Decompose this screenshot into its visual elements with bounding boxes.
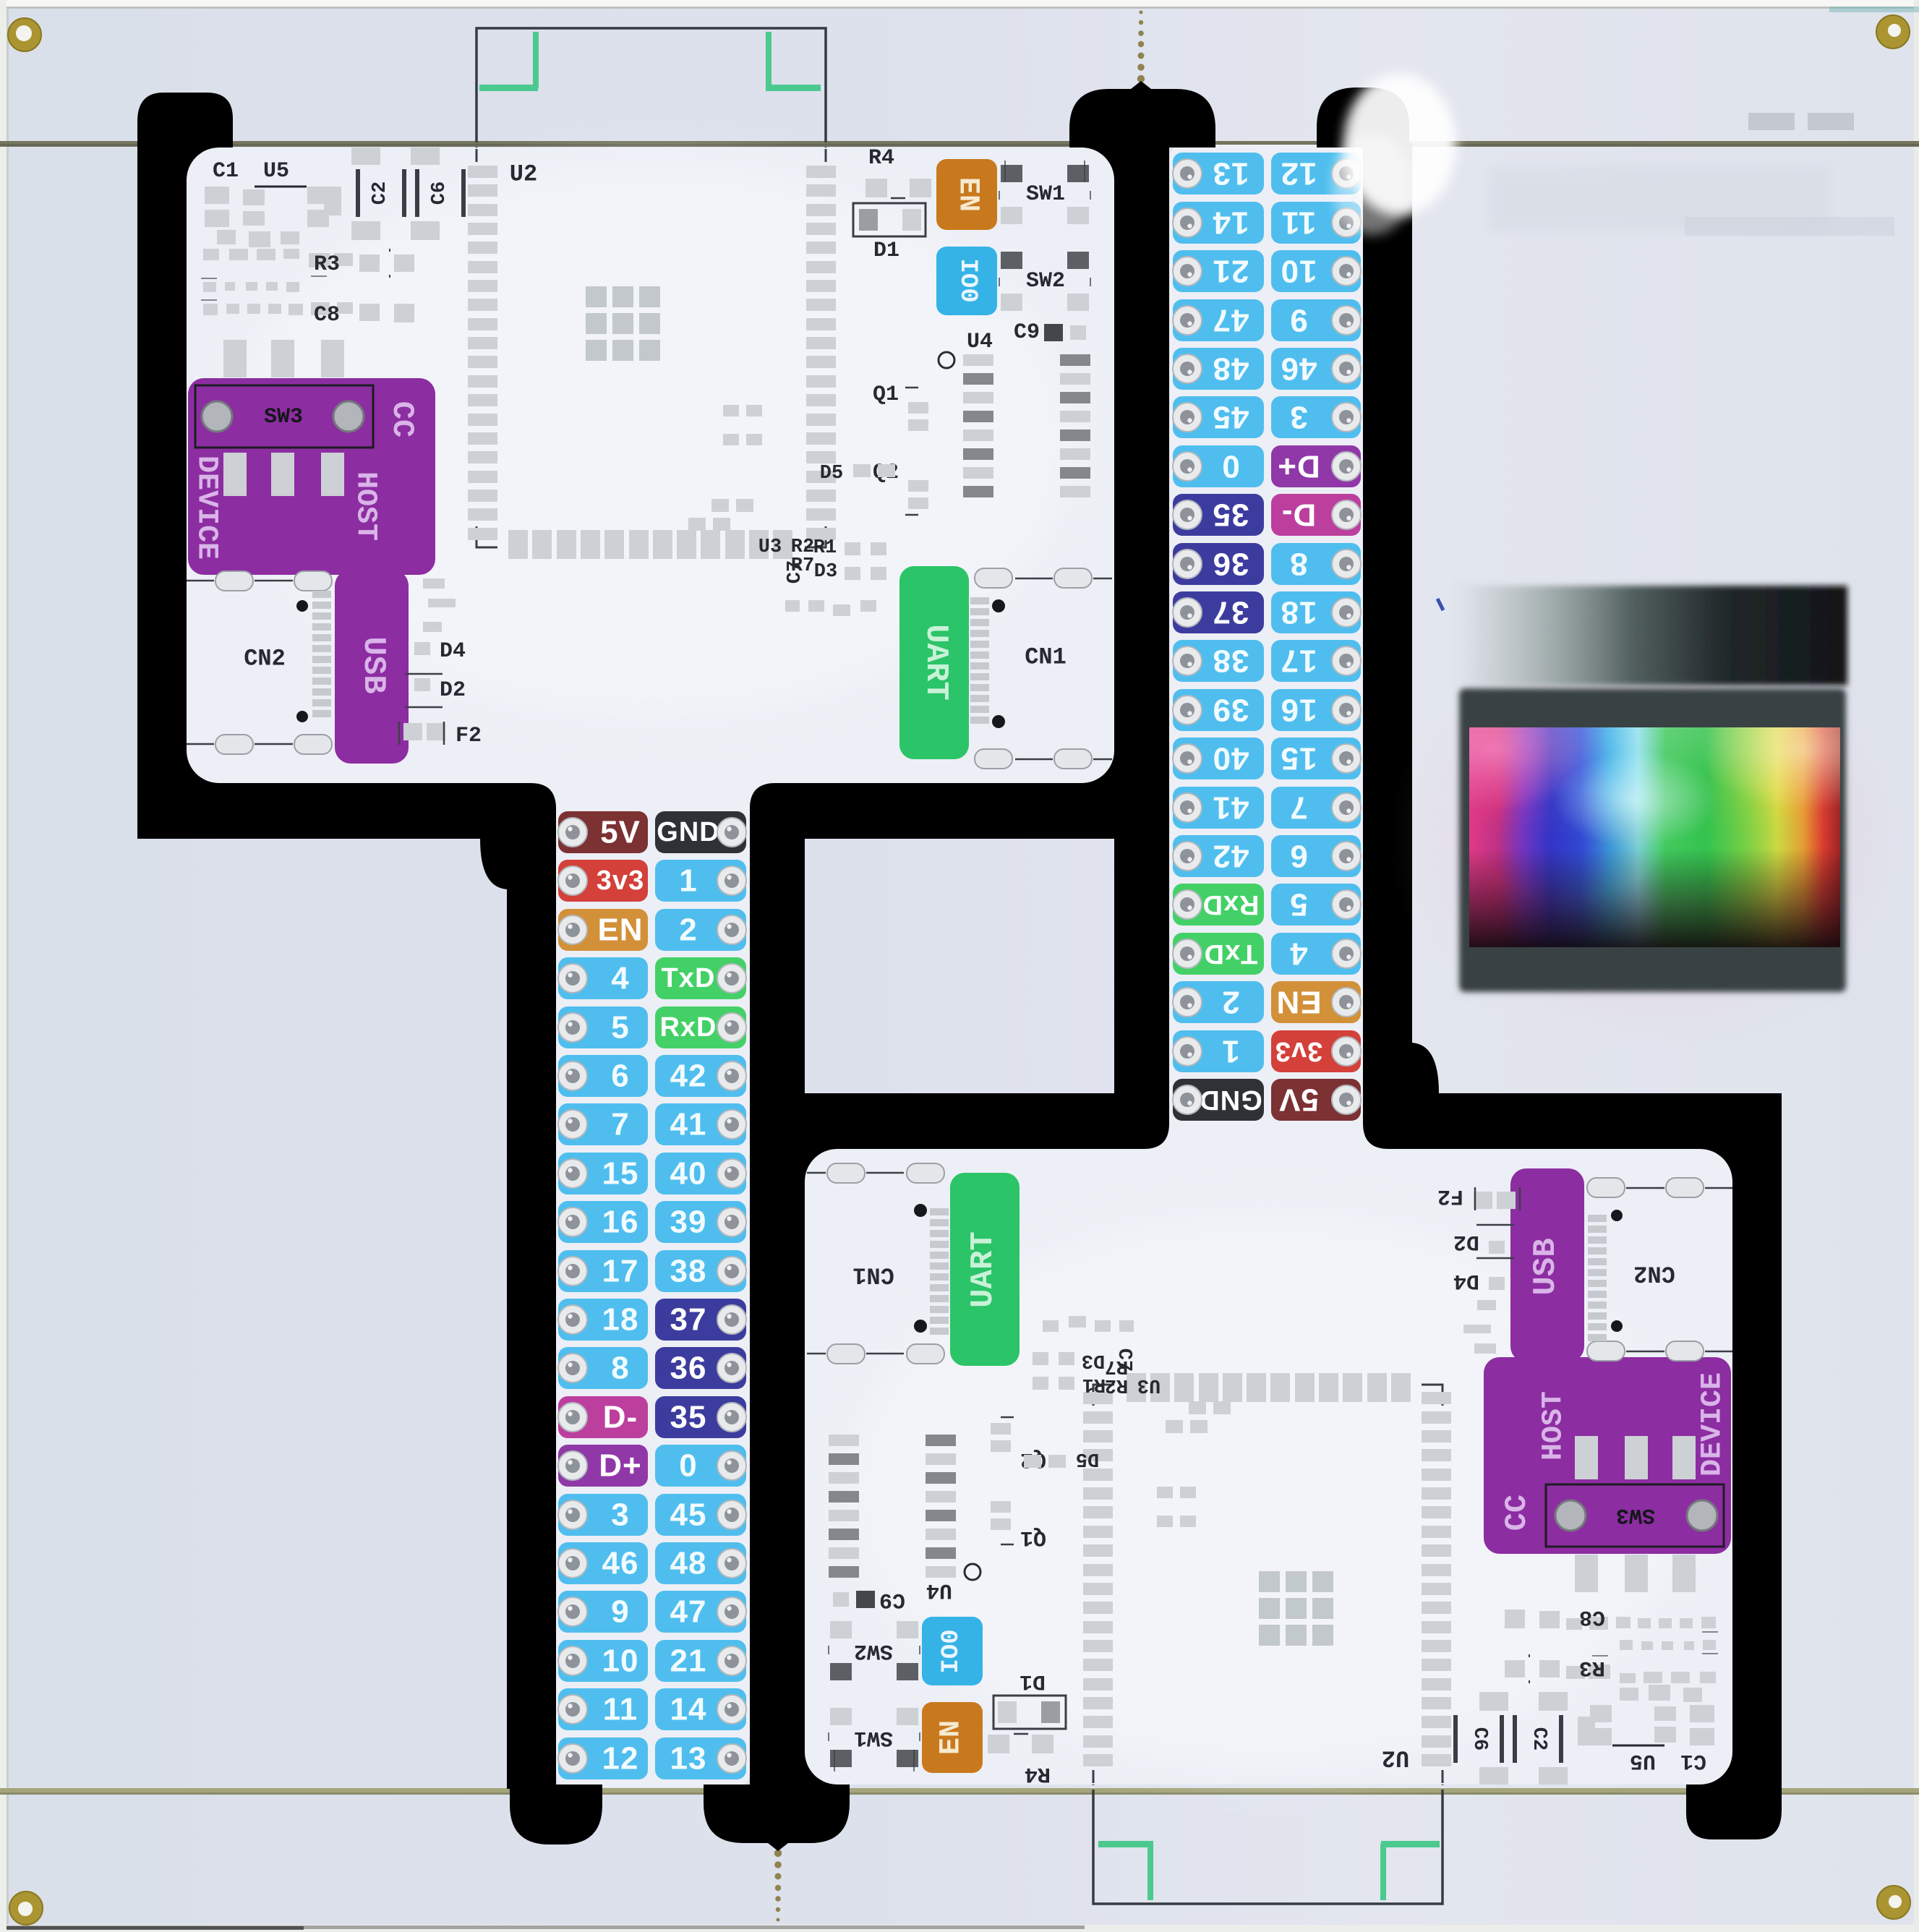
svg-text:HOST: HOST [349, 471, 382, 541]
svg-text:13: 13 [670, 1741, 707, 1777]
svg-text:3: 3 [611, 1497, 629, 1533]
svg-text:10: 10 [602, 1644, 639, 1679]
svg-text:R3: R3 [314, 252, 340, 277]
svg-text:DEVICE: DEVICE [190, 456, 223, 560]
svg-text:9: 9 [611, 1594, 629, 1630]
svg-text:0: 0 [679, 1448, 697, 1484]
svg-text:12: 12 [602, 1741, 639, 1777]
svg-text:16: 16 [602, 1205, 639, 1240]
svg-text:3v3: 3v3 [597, 865, 644, 896]
svg-text:U2: U2 [510, 161, 537, 188]
svg-text:4: 4 [611, 961, 629, 996]
svg-text:37: 37 [670, 1302, 707, 1338]
svg-text:R7: R7 [791, 555, 814, 577]
svg-text:45: 45 [670, 1497, 707, 1533]
svg-text:Q1: Q1 [873, 382, 899, 407]
svg-text:48: 48 [670, 1546, 707, 1581]
svg-text:40: 40 [670, 1156, 707, 1192]
svg-text:14: 14 [670, 1692, 707, 1727]
svg-text:C2: C2 [369, 181, 391, 205]
svg-text:46: 46 [602, 1546, 639, 1581]
svg-text:D5: D5 [820, 463, 843, 484]
svg-text:2: 2 [679, 912, 697, 948]
svg-text:U3: U3 [758, 537, 782, 558]
svg-text:EN: EN [597, 912, 643, 948]
svg-text:CC: CC [385, 401, 419, 437]
svg-text:39: 39 [670, 1205, 707, 1240]
svg-text:F2: F2 [456, 724, 482, 748]
svg-text:7: 7 [611, 1107, 629, 1142]
svg-text:8: 8 [611, 1351, 629, 1386]
svg-text:SW3: SW3 [264, 405, 303, 429]
svg-text:D3: D3 [814, 561, 837, 583]
svg-text:42: 42 [670, 1059, 707, 1094]
svg-text:41: 41 [670, 1107, 707, 1142]
svg-text:R4: R4 [868, 146, 894, 171]
svg-text:UART: UART [918, 624, 954, 701]
svg-text:C9: C9 [1014, 320, 1040, 345]
svg-text:18: 18 [602, 1302, 639, 1338]
svg-text:TxD: TxD [662, 963, 716, 993]
svg-text:38: 38 [670, 1254, 707, 1289]
svg-text:C6: C6 [429, 181, 450, 205]
svg-text:GND: GND [657, 817, 719, 847]
svg-text:SW1: SW1 [1026, 182, 1065, 207]
svg-text:D-: D- [603, 1400, 638, 1435]
svg-text:47: 47 [670, 1594, 707, 1630]
svg-text:5: 5 [611, 1010, 629, 1046]
svg-text:C1: C1 [213, 159, 239, 184]
svg-text:11: 11 [603, 1692, 638, 1727]
svg-text:RxD: RxD [659, 1012, 717, 1043]
svg-text:USB: USB [355, 636, 391, 693]
svg-text:15: 15 [602, 1156, 639, 1192]
svg-text:R1: R1 [813, 537, 837, 559]
svg-text:6: 6 [611, 1059, 629, 1094]
svg-text:U4: U4 [967, 330, 993, 354]
svg-text:17: 17 [602, 1254, 639, 1289]
svg-text:C8: C8 [314, 303, 340, 328]
svg-text:35: 35 [670, 1400, 707, 1435]
svg-text:SW2: SW2 [1026, 269, 1065, 294]
svg-text:36: 36 [670, 1351, 707, 1386]
svg-text:5V: 5V [600, 815, 641, 850]
svg-text:D2: D2 [440, 678, 466, 703]
svg-text:1: 1 [679, 863, 697, 899]
svg-text:D4: D4 [440, 639, 466, 664]
svg-text:IO0: IO0 [954, 258, 981, 302]
svg-text:D+: D+ [599, 1448, 641, 1484]
svg-text:CN2: CN2 [244, 646, 286, 672]
svg-text:EN: EN [952, 177, 984, 212]
svg-text:CN1: CN1 [1025, 644, 1067, 671]
svg-text:D1: D1 [873, 239, 899, 263]
svg-text:U5: U5 [263, 159, 289, 184]
svg-text:21: 21 [670, 1644, 707, 1679]
